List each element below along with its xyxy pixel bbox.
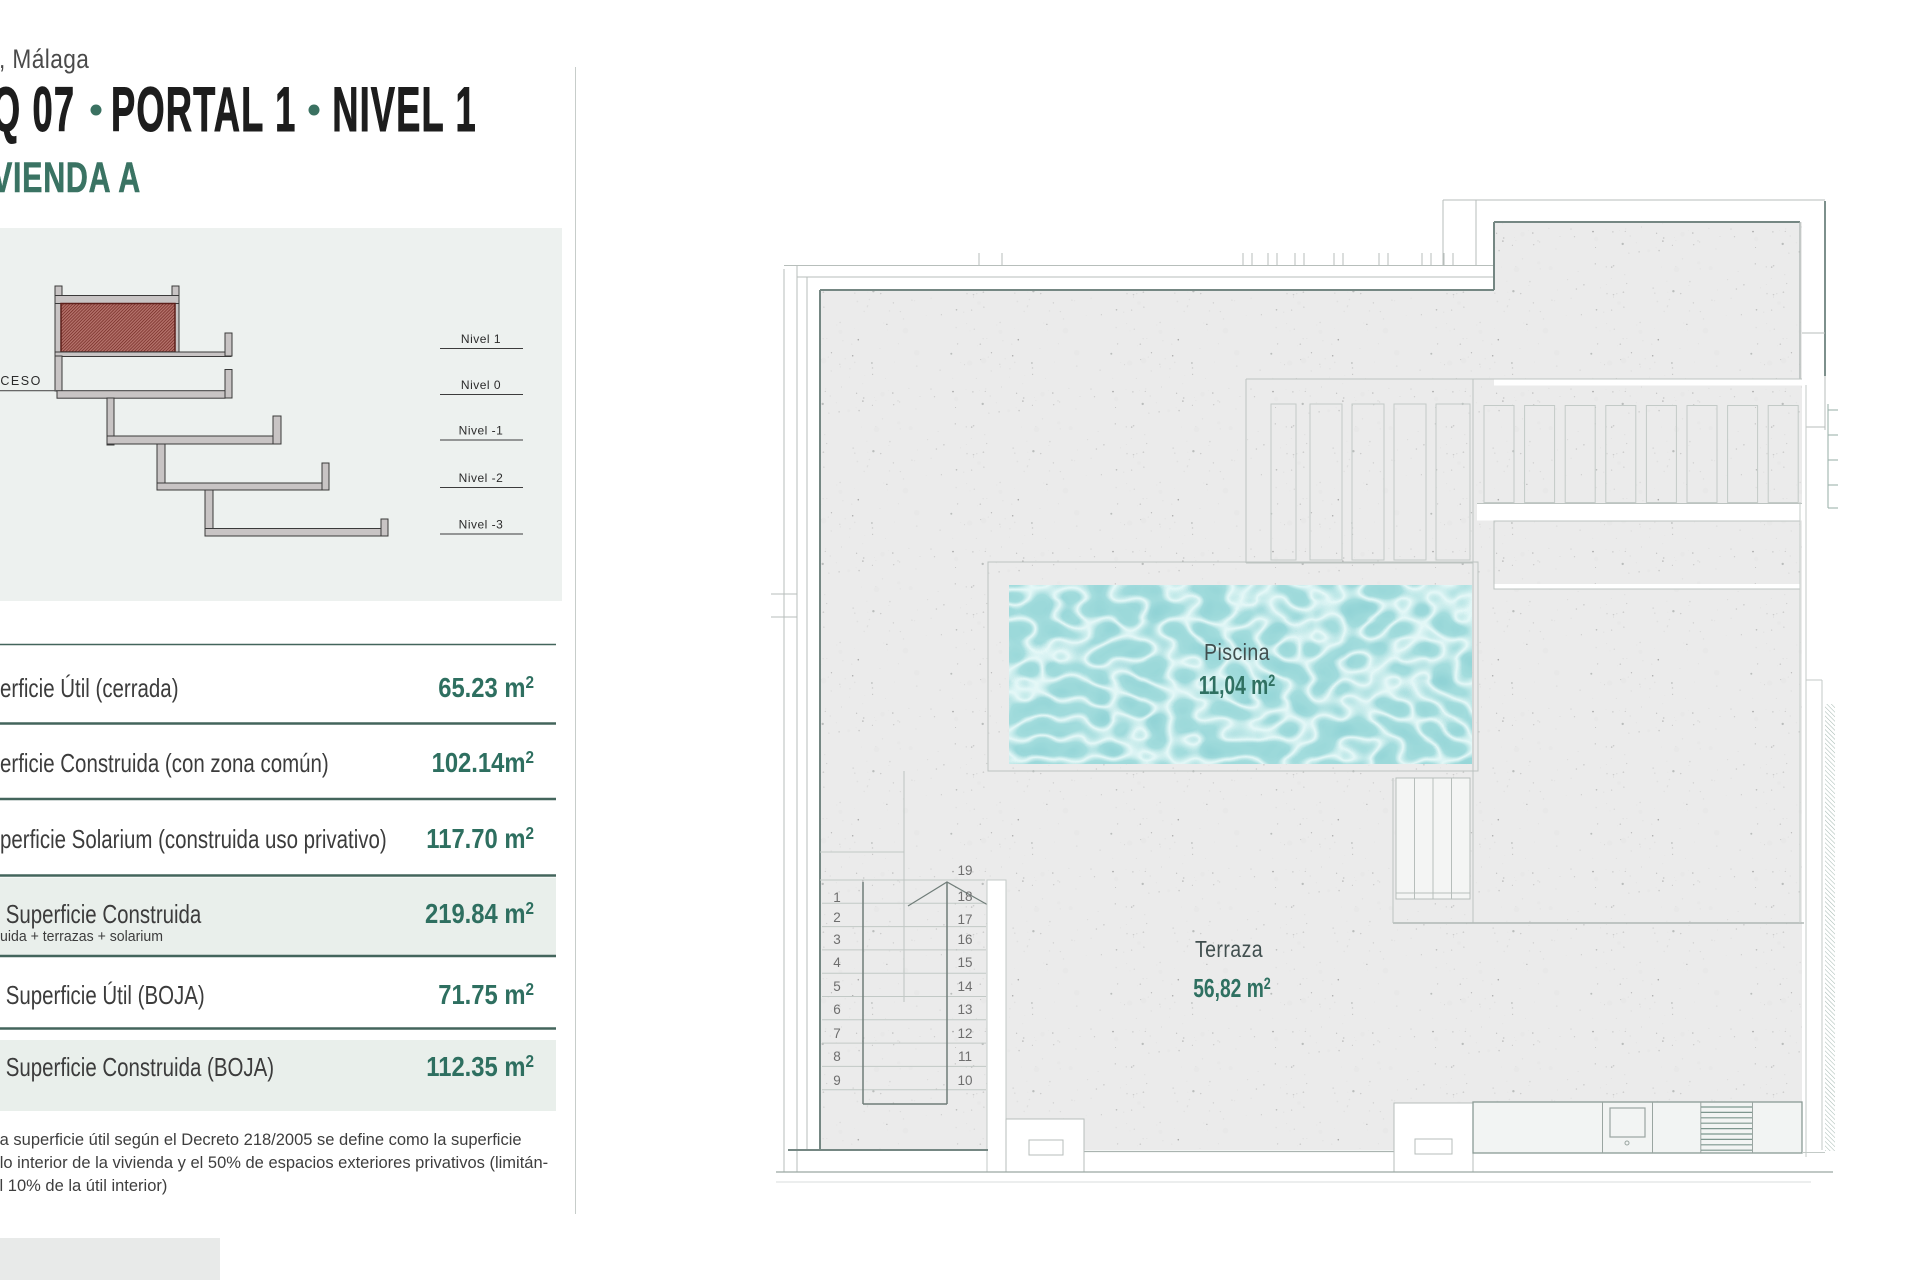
svg-text:10: 10: [957, 1073, 972, 1088]
svg-text:Piscina: Piscina: [1204, 640, 1270, 666]
svg-text:14: 14: [957, 979, 973, 994]
svg-text:11,04 m2: 11,04 m2: [1199, 670, 1275, 700]
svg-text:Total Superficie Construida (B: Total Superficie Construida (BOJA): [0, 1052, 274, 1082]
svg-text:17: 17: [957, 912, 972, 927]
svg-text:Terraza: Terraza: [1195, 937, 1263, 963]
svg-text:ACCESO: ACCESO: [0, 374, 42, 388]
svg-text:56,82 m2: 56,82 m2: [1193, 973, 1271, 1003]
svg-text:Superficie Útil (cerrada): Superficie Útil (cerrada): [0, 673, 178, 703]
svg-text:5: 5: [833, 979, 841, 994]
svg-text:13: 13: [957, 1002, 972, 1017]
svg-text:1: 1: [833, 890, 841, 905]
svg-text:8: 8: [833, 1049, 841, 1064]
svg-text:BLOQ 07 · PORTAL 1 · NIVEL 1: BLOQ 07 · PORTAL 1 · NIVEL 1: [0, 73, 477, 144]
svg-text:18: 18: [957, 889, 972, 904]
svg-text:19: 19: [957, 863, 972, 878]
svg-text:Superficie Construida (con zon: Superficie Construida (con zona común): [0, 748, 329, 778]
svg-text:7: 7: [833, 1026, 841, 1041]
svg-text:Total Superficie Útil (BOJA): Total Superficie Útil (BOJA): [0, 980, 205, 1010]
svg-text:11: 11: [958, 1049, 972, 1064]
svg-text:102.14m2: 102.14m2: [432, 746, 534, 778]
svg-text:Nivel -1: Nivel -1: [459, 424, 504, 438]
svg-text:117.70 m2: 117.70 m2: [426, 822, 534, 854]
svg-text:Nivel 1: Nivel 1: [461, 332, 501, 346]
svg-text:219.84 m2: 219.84 m2: [425, 897, 534, 929]
svg-text:4: 4: [833, 955, 841, 970]
svg-text:6: 6: [833, 1002, 841, 1017]
svg-text:Nivel 0: Nivel 0: [461, 378, 501, 392]
svg-text:71.75 m2: 71.75 m2: [438, 978, 534, 1010]
svg-text:dose al 10% de la útil interio: dose al 10% de la útil interior): [0, 1177, 167, 1195]
svg-text:Nivel -2: Nivel -2: [459, 471, 504, 485]
svg-text:65.23 m2: 65.23 m2: [438, 671, 534, 703]
svg-text:3: 3: [833, 932, 841, 947]
svg-text:12: 12: [957, 1026, 972, 1041]
svg-text:2: 2: [833, 910, 841, 925]
svg-text:del suelo interior de la vivie: del suelo interior de la vivienda y el 5…: [0, 1154, 548, 1172]
svg-text:La superficie útil según el De: La superficie útil según el Decreto 218/…: [0, 1131, 522, 1149]
svg-text:Superficie Solarium (construid: Superficie Solarium (construida uso priv…: [0, 824, 387, 854]
svg-text:Total Superficie Construida: Total Superficie Construida: [0, 899, 202, 929]
svg-text:16: 16: [957, 932, 972, 947]
svg-text:, Málaga: , Málaga: [0, 44, 89, 74]
svg-text:Nivel -3: Nivel -3: [459, 518, 504, 532]
svg-text:Construida + terrazas + solari: Construida + terrazas + solarium: [0, 928, 163, 945]
svg-text:9: 9: [833, 1073, 841, 1088]
svg-text:VIVIENDA A: VIVIENDA A: [0, 153, 141, 201]
svg-text:112.35 m2: 112.35 m2: [426, 1050, 534, 1082]
svg-text:15: 15: [957, 955, 972, 970]
